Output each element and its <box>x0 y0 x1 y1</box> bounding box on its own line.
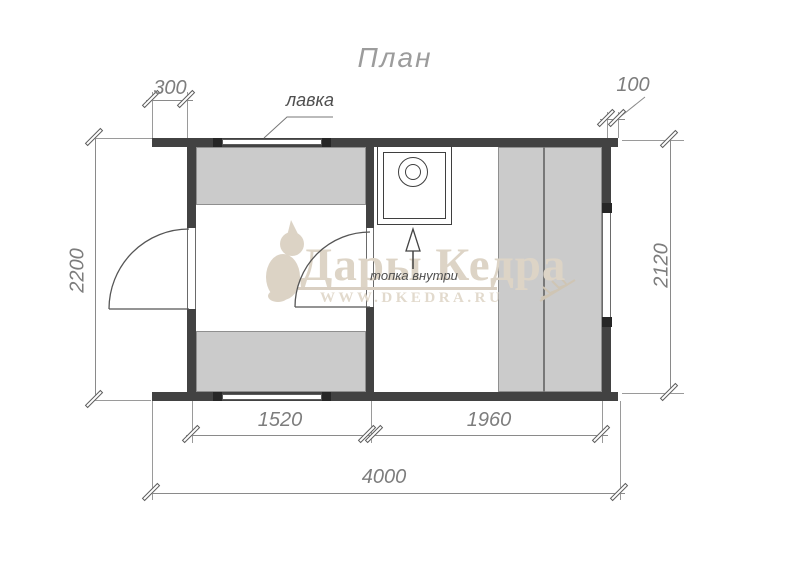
tick <box>142 483 160 501</box>
top-strip-block-right <box>322 138 331 147</box>
bottom-strip-block-right <box>322 392 331 401</box>
ext-2120-top <box>622 140 684 141</box>
stove-note-label: топка внутри <box>354 268 474 283</box>
right-wall-lower <box>602 327 611 392</box>
tick <box>660 383 678 401</box>
watermark-site: WWW.DKEDRA.RU <box>320 290 503 307</box>
partition-lower <box>366 307 374 392</box>
bench-bottom <box>196 331 366 392</box>
ext-2120-bottom <box>622 393 684 394</box>
bottom-strip-block-left <box>213 392 222 401</box>
left-wall-lower <box>187 309 196 392</box>
ext-2200-bottom <box>93 400 151 401</box>
ext-4000-left <box>152 401 153 500</box>
ext-chain-right <box>602 401 603 443</box>
stove-circle-inner <box>405 164 421 180</box>
top-wall-bench-strip <box>222 139 322 145</box>
dim-2200: 2200 <box>67 226 90 316</box>
ext-2200-top <box>93 138 152 139</box>
floor-plan-canvas: План <box>0 0 800 565</box>
dim-300: 300 <box>130 77 210 100</box>
dim-4000: 4000 <box>334 466 434 489</box>
dim-line-chain <box>186 435 608 436</box>
dim-line-4000 <box>147 493 625 494</box>
dim-1960: 1960 <box>439 409 539 432</box>
tick <box>610 483 628 501</box>
tick <box>85 390 103 408</box>
left-wall-upper <box>187 147 196 228</box>
bench-label: лавка <box>270 90 350 111</box>
squirrel-icon <box>224 220 304 302</box>
tick <box>660 130 678 148</box>
partition-upper <box>366 147 374 228</box>
ext-4000-right <box>620 401 621 500</box>
left-door <box>109 229 189 309</box>
dim-2120: 2120 <box>651 221 674 311</box>
dim-line-2200 <box>95 138 96 400</box>
ext-chain-left <box>192 401 193 443</box>
dim-100: 100 <box>593 74 673 97</box>
top-strip-block-left <box>213 138 222 147</box>
left-door-opening <box>187 228 196 309</box>
bench-leader-line <box>264 117 333 138</box>
tick <box>85 128 103 146</box>
tick <box>182 425 200 443</box>
watermark-brand: Дары Кедра <box>300 238 566 292</box>
right-wall-upper <box>602 147 611 203</box>
bottom-wall-strip <box>222 394 322 400</box>
tick <box>592 425 610 443</box>
dim-1520: 1520 <box>230 409 330 432</box>
right-window <box>602 213 611 317</box>
page-title: План <box>320 42 470 74</box>
bench-top <box>196 147 366 205</box>
